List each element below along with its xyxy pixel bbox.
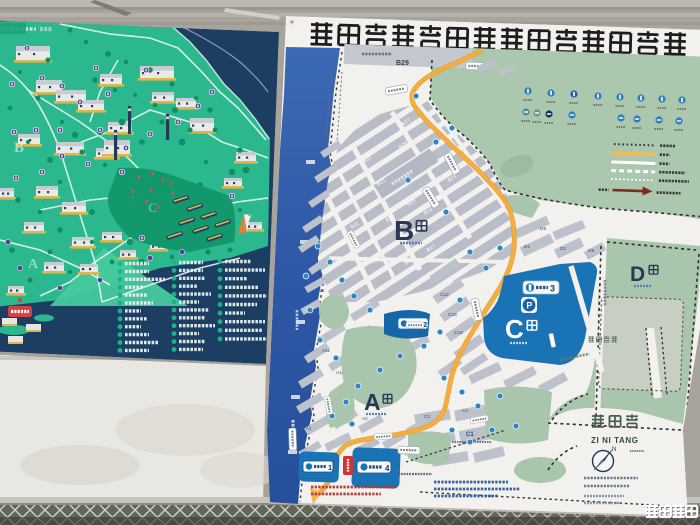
svg-text:C2: C2 xyxy=(424,414,430,419)
svg-text:N: N xyxy=(612,447,616,453)
svg-text:A: A xyxy=(28,257,39,272)
svg-text:C: C xyxy=(148,200,157,215)
svg-text:A15: A15 xyxy=(316,288,325,293)
svg-text:C: C xyxy=(505,314,524,344)
svg-text:C16: C16 xyxy=(448,312,457,318)
svg-text:4: 4 xyxy=(385,464,390,473)
svg-text:A: A xyxy=(364,389,381,415)
svg-text:A2: A2 xyxy=(362,416,368,421)
svg-text:B29: B29 xyxy=(396,60,409,67)
svg-text:D9: D9 xyxy=(588,248,594,254)
svg-text:C3: C3 xyxy=(462,408,468,413)
svg-text:D2: D2 xyxy=(560,246,566,252)
svg-text:P: P xyxy=(526,301,532,311)
svg-text:A7: A7 xyxy=(306,392,312,397)
svg-text:A11: A11 xyxy=(322,348,330,353)
svg-text:B: B xyxy=(14,140,24,156)
svg-text:3: 3 xyxy=(550,284,555,294)
svg-text:1: 1 xyxy=(328,463,332,472)
svg-text:ZI NI TANG: ZI NI TANG xyxy=(591,436,639,445)
svg-text:D1: D1 xyxy=(524,244,530,250)
svg-text:C12: C12 xyxy=(440,292,449,298)
svg-text:D6: D6 xyxy=(540,226,546,232)
svg-text:A13: A13 xyxy=(306,314,315,319)
svg-text:D: D xyxy=(630,263,645,286)
svg-text:C1: C1 xyxy=(466,432,474,438)
svg-text:B: B xyxy=(394,215,414,246)
svg-text:C18: C18 xyxy=(454,330,463,336)
svg-text:A1: A1 xyxy=(306,426,312,431)
